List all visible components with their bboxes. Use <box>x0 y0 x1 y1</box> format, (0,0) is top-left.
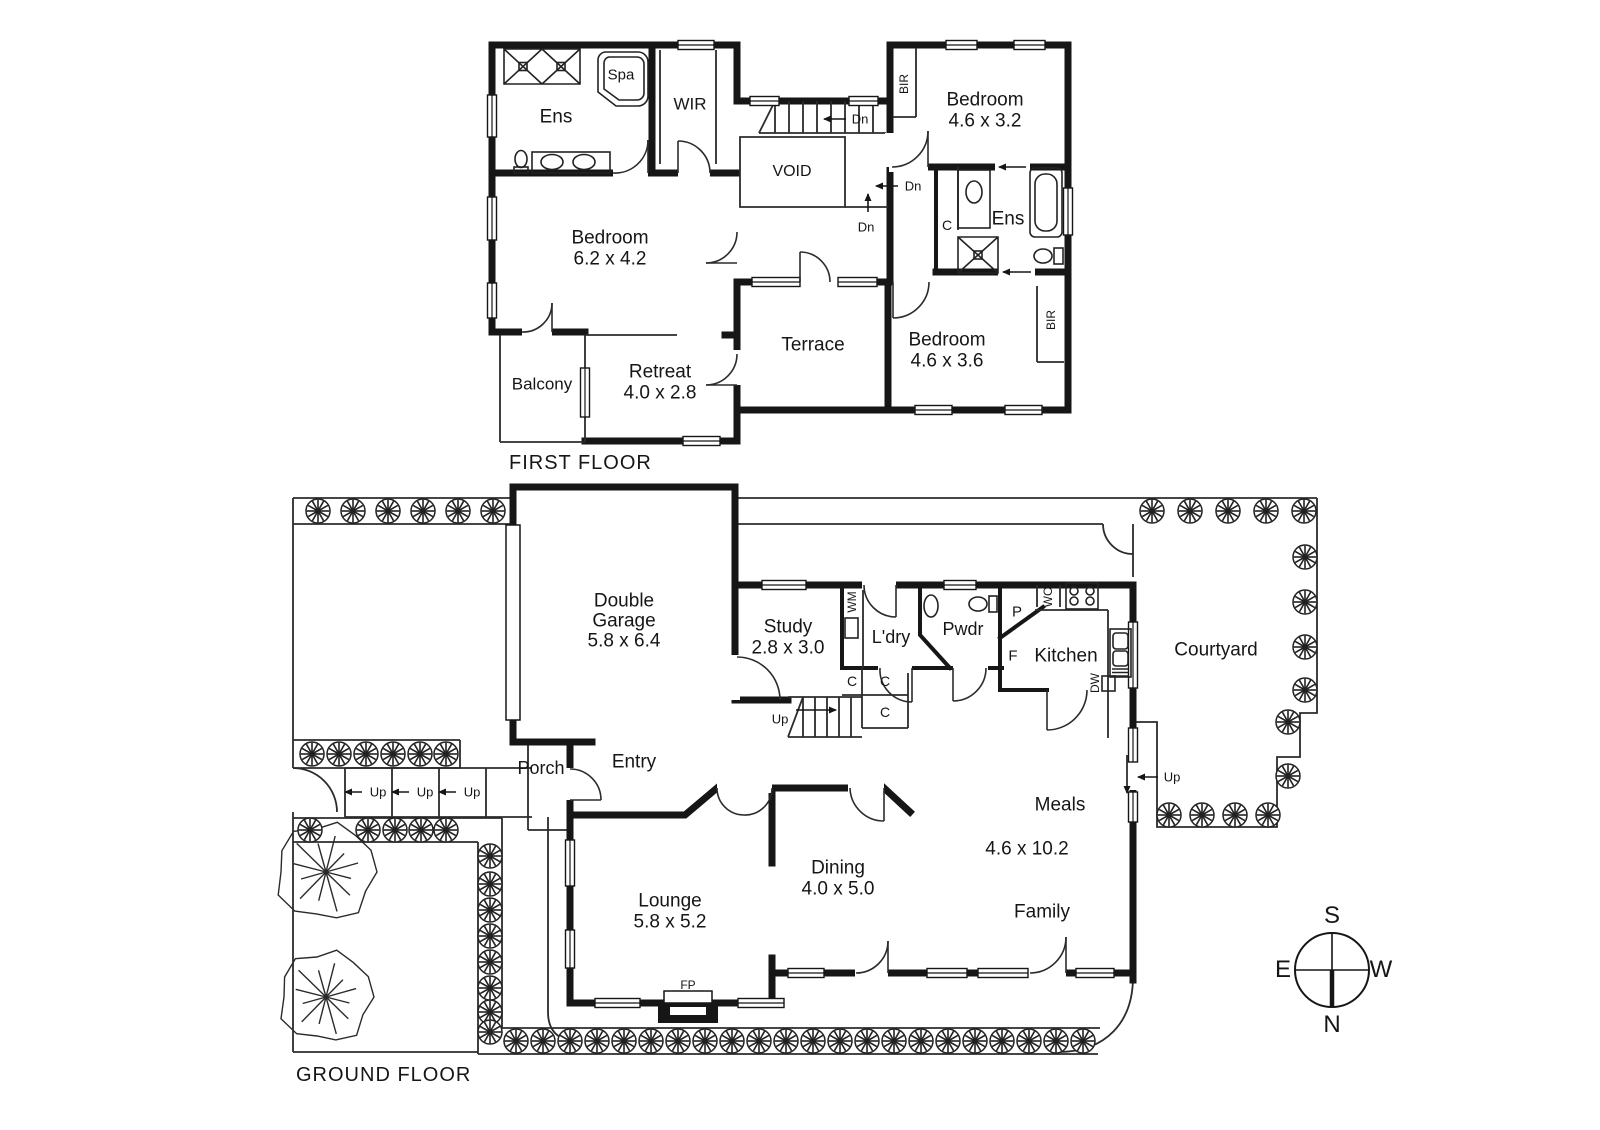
garage-door-icon <box>506 525 520 720</box>
tree-icon <box>639 1029 663 1053</box>
tree-icon <box>478 976 502 1000</box>
window-icon <box>678 41 714 50</box>
window-icon <box>978 969 1028 978</box>
window-icon <box>946 41 977 50</box>
window-icon <box>1129 792 1138 822</box>
tree-icon <box>1293 635 1317 659</box>
window-icon <box>1005 406 1042 415</box>
tree-icon <box>481 499 505 523</box>
toilet-icon <box>1034 249 1052 263</box>
tree-icon <box>882 1029 906 1053</box>
spa-icon <box>598 52 648 106</box>
window-icon <box>566 930 575 968</box>
tree-icon <box>1044 1029 1068 1053</box>
tree-icon <box>1017 1029 1041 1053</box>
sink-icon <box>1113 633 1128 649</box>
basin-icon <box>541 155 563 170</box>
tree-icon <box>801 1029 825 1053</box>
shower-icon <box>504 49 580 84</box>
window-icon <box>488 197 497 240</box>
tree-icon <box>774 1029 798 1053</box>
tree-icon <box>478 950 502 974</box>
tree-icon <box>1071 1029 1095 1053</box>
spa-icon <box>604 57 644 100</box>
partition-walls <box>842 167 1047 690</box>
tree-icon <box>1216 499 1240 523</box>
tree-icon <box>1293 545 1317 569</box>
window-icon <box>738 999 784 1008</box>
door-arc-icon <box>1030 937 1066 973</box>
window-icon <box>762 581 806 590</box>
tree-icon <box>585 1029 609 1053</box>
tree-icon <box>478 924 502 948</box>
sink-icon <box>1112 669 1129 676</box>
tree-icon <box>963 1029 987 1053</box>
window-icon <box>488 95 497 137</box>
cooktop-icon <box>1070 597 1078 605</box>
tree-icon <box>1254 499 1278 523</box>
window-icon <box>838 278 877 287</box>
window-icon <box>595 999 640 1008</box>
window-icon <box>1014 41 1045 50</box>
window-icon <box>1064 188 1073 235</box>
toilet-icon <box>969 597 987 611</box>
tree-icon <box>1157 803 1181 827</box>
washing-machine-icon <box>845 618 858 638</box>
tree-icon <box>612 1029 636 1053</box>
tree-icon <box>409 818 433 842</box>
window-icon <box>1129 728 1138 762</box>
basin-icon <box>573 155 595 170</box>
window-icon <box>1076 969 1114 978</box>
window-icon <box>752 278 800 287</box>
door-arc-icon <box>737 657 780 700</box>
basin-icon <box>924 595 938 617</box>
tree-icon <box>298 818 322 842</box>
door-arc-icon <box>892 131 928 167</box>
toilet-icon <box>515 151 527 168</box>
tree-icon <box>356 818 380 842</box>
window-icon <box>788 969 824 978</box>
tree-icon <box>434 818 458 842</box>
tree-icon <box>354 742 378 766</box>
tree-icon <box>1223 803 1247 827</box>
floorplan-drawing <box>0 0 1600 1130</box>
tree-icon <box>855 1029 879 1053</box>
tree-icon <box>1190 803 1214 827</box>
sink-icon <box>1113 651 1128 666</box>
window-icon <box>683 437 720 446</box>
tree-icon <box>1292 499 1316 523</box>
tree-icon <box>828 1029 852 1053</box>
door-arc-icon <box>1047 690 1087 730</box>
fireplace-icon <box>664 991 712 1003</box>
toilet-icon <box>1054 248 1063 264</box>
tree-icon <box>478 872 502 896</box>
tree-icon <box>558 1029 582 1053</box>
window-icon <box>849 97 878 106</box>
tree-icon <box>693 1029 717 1053</box>
toilet-icon <box>989 596 997 612</box>
fixture-symbols <box>504 49 1131 1023</box>
window-icon <box>915 406 952 415</box>
tree-icon <box>478 1020 502 1044</box>
floorplan-page: FIRST FLOOREnsSpaWIRBedroom6.2 x 4.2Balc… <box>0 0 1600 1130</box>
tree-icon <box>383 818 407 842</box>
tree-icon <box>990 1029 1014 1053</box>
fireplace-icon <box>670 1007 706 1015</box>
window-icon <box>581 368 590 417</box>
tree-icon <box>341 499 365 523</box>
window-icon <box>1129 622 1138 688</box>
window-icon <box>566 840 575 886</box>
door-openings <box>522 133 1138 978</box>
tree-icon <box>1256 803 1280 827</box>
tree-icon <box>408 742 432 766</box>
tree-icon <box>1293 590 1317 614</box>
shower-icon <box>958 237 998 273</box>
window-icon <box>750 97 779 106</box>
window-icon <box>944 581 976 590</box>
bathtub-icon <box>1035 174 1057 231</box>
tree-icon <box>1276 710 1300 734</box>
cooktop-icon <box>1086 597 1094 605</box>
tree-icon <box>747 1029 771 1053</box>
tree-icon <box>381 742 405 766</box>
tree-icon <box>446 499 470 523</box>
basin-icon <box>966 181 982 203</box>
tree-icon <box>504 1029 528 1053</box>
tree-icon <box>909 1029 933 1053</box>
tree-icon <box>434 742 458 766</box>
vanity-icon <box>958 170 990 228</box>
tree-icon <box>478 898 502 922</box>
compass-icon <box>1295 933 1369 1007</box>
tree-icon <box>376 499 400 523</box>
window-icon <box>927 969 967 978</box>
door-swing-arcs <box>522 131 1087 973</box>
tree-icon <box>327 742 351 766</box>
tree-icon <box>306 499 330 523</box>
tree-icon <box>531 1029 555 1053</box>
tree-icon <box>411 499 435 523</box>
tree-icon <box>300 742 324 766</box>
door-arc-icon <box>893 282 929 318</box>
tree-icon <box>1293 678 1317 702</box>
tree-icon <box>478 844 502 868</box>
tree-icon <box>936 1029 960 1053</box>
tree-icon <box>666 1029 690 1053</box>
tree-icon <box>1140 499 1164 523</box>
tree-icon <box>720 1029 744 1053</box>
window-icon <box>488 283 497 318</box>
tree-icon <box>1276 764 1300 788</box>
large-tree-icon <box>281 950 374 1040</box>
tree-icon <box>1178 499 1202 523</box>
